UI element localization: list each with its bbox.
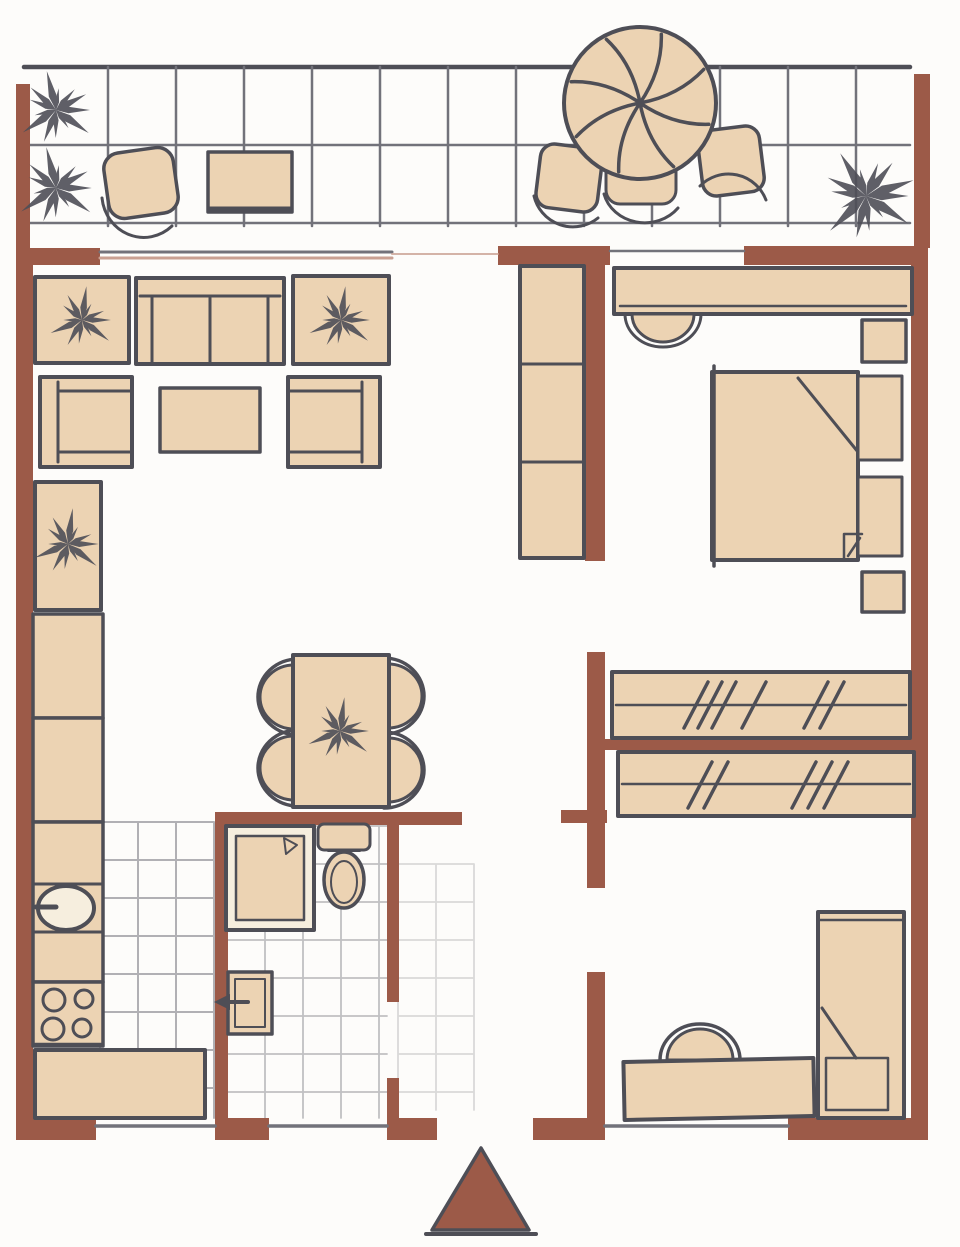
coffee-table: [160, 388, 260, 452]
top-wall-right-segment: [744, 246, 928, 265]
balcony-left-wall: [16, 84, 30, 248]
balcony-side-table: [208, 152, 292, 212]
bathroom-left-wall-foot: [215, 1118, 269, 1140]
double-bed-pillow-1: [858, 376, 902, 460]
top-wall-left-segment: [16, 248, 100, 265]
rooms-divider-wall: [605, 739, 928, 750]
bedroom-partition-wall-upper: [585, 265, 605, 561]
nightstand-top: [862, 320, 906, 362]
double-bed-pillow-2: [858, 477, 902, 556]
bathroom-right-wall: [387, 825, 399, 1002]
kitchen-bottom-counter: [35, 1050, 205, 1118]
kitchen-cabinet-upper: [33, 614, 103, 718]
hall-top-wall-stub: [561, 810, 607, 823]
top-wall-middle-segment: [498, 246, 610, 265]
desk: [623, 1058, 814, 1120]
floor-plan-svg: [0, 0, 960, 1247]
kitchen-cabinet-lower: [33, 718, 103, 822]
balcony-lounge-chair: [102, 145, 181, 220]
double-bed-mattress: [712, 372, 858, 560]
bottom-wall-right-segment: [788, 1118, 928, 1140]
nightstand-bottom: [862, 572, 904, 612]
balcony-right-wall: [914, 74, 930, 248]
left-exterior-wall: [16, 248, 33, 1140]
right-exterior-wall: [911, 248, 928, 1140]
hall-partition-wall-lower: [587, 972, 605, 1118]
toilet-tank: [318, 824, 370, 850]
hall-partition-wall-foot: [533, 1118, 605, 1140]
bottom-wall-left-segment: [16, 1118, 96, 1140]
bathroom-right-wall-stub: [387, 1078, 399, 1123]
floor-plan: [0, 0, 960, 1247]
bathroom-right-wall-foot: [387, 1118, 437, 1140]
single-bed: [818, 912, 904, 1118]
tall-shelf-cabinet: [520, 266, 584, 558]
hall-partition-wall-middle: [587, 652, 605, 888]
